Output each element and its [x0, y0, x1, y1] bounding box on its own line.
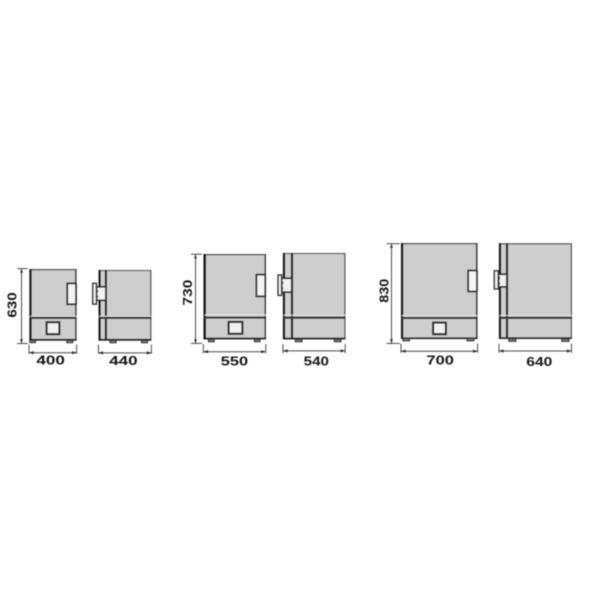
svg-text:440: 440 [109, 354, 138, 368]
svg-text:630: 630 [6, 292, 20, 317]
svg-text:400: 400 [36, 354, 65, 368]
svg-text:640: 640 [526, 355, 552, 369]
svg-text:550: 550 [221, 355, 248, 369]
svg-text:730: 730 [181, 280, 195, 306]
svg-text:830: 830 [377, 279, 391, 303]
svg-text:540: 540 [304, 355, 329, 369]
svg-text:700: 700 [426, 354, 454, 368]
